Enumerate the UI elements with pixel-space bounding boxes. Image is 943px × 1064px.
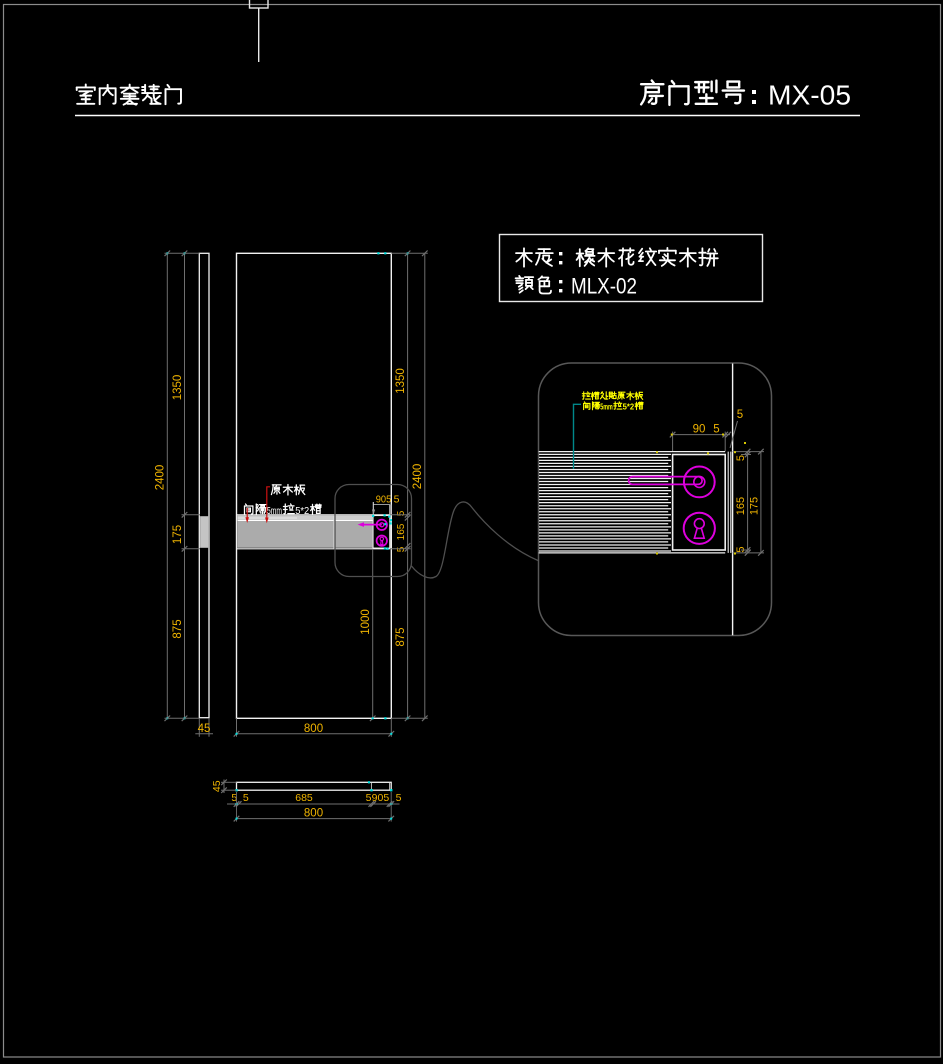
svg-text:905: 905	[376, 494, 392, 506]
svg-text:1350: 1350	[395, 368, 407, 394]
svg-text:5: 5	[713, 423, 719, 435]
svg-text:45: 45	[198, 723, 211, 735]
svg-text:800: 800	[304, 723, 323, 735]
svg-text:165: 165	[735, 497, 747, 515]
svg-text:1000: 1000	[360, 609, 372, 635]
svg-text:5: 5	[735, 455, 747, 461]
svg-text:90: 90	[372, 792, 384, 804]
svg-text:875: 875	[395, 627, 407, 646]
svg-text:685: 685	[295, 792, 313, 804]
svg-text:5: 5	[396, 792, 402, 804]
svg-text:5: 5	[243, 792, 249, 804]
svg-text:5: 5	[737, 409, 743, 421]
svg-text:5: 5	[394, 494, 400, 506]
svg-text:165: 165	[396, 523, 407, 540]
svg-text:175: 175	[172, 525, 184, 544]
svg-text:5mm: 5mm	[600, 401, 613, 411]
svg-text:5: 5	[396, 510, 407, 516]
svg-text:2400: 2400	[412, 464, 424, 490]
svg-text:90: 90	[693, 423, 706, 435]
svg-text:MLX-02: MLX-02	[571, 274, 637, 299]
svg-text:MX-05: MX-05	[768, 80, 851, 111]
svg-text:800: 800	[304, 807, 323, 819]
svg-text:1350: 1350	[172, 375, 184, 401]
svg-text:875: 875	[172, 619, 184, 638]
svg-text:5: 5	[383, 792, 389, 804]
svg-text:175: 175	[748, 497, 760, 515]
svg-text:5*2: 5*2	[623, 401, 635, 411]
svg-text:2400: 2400	[155, 465, 167, 491]
svg-text:45: 45	[211, 780, 223, 792]
svg-text:5*2: 5*2	[295, 505, 309, 517]
svg-text:5mm: 5mm	[267, 505, 282, 517]
